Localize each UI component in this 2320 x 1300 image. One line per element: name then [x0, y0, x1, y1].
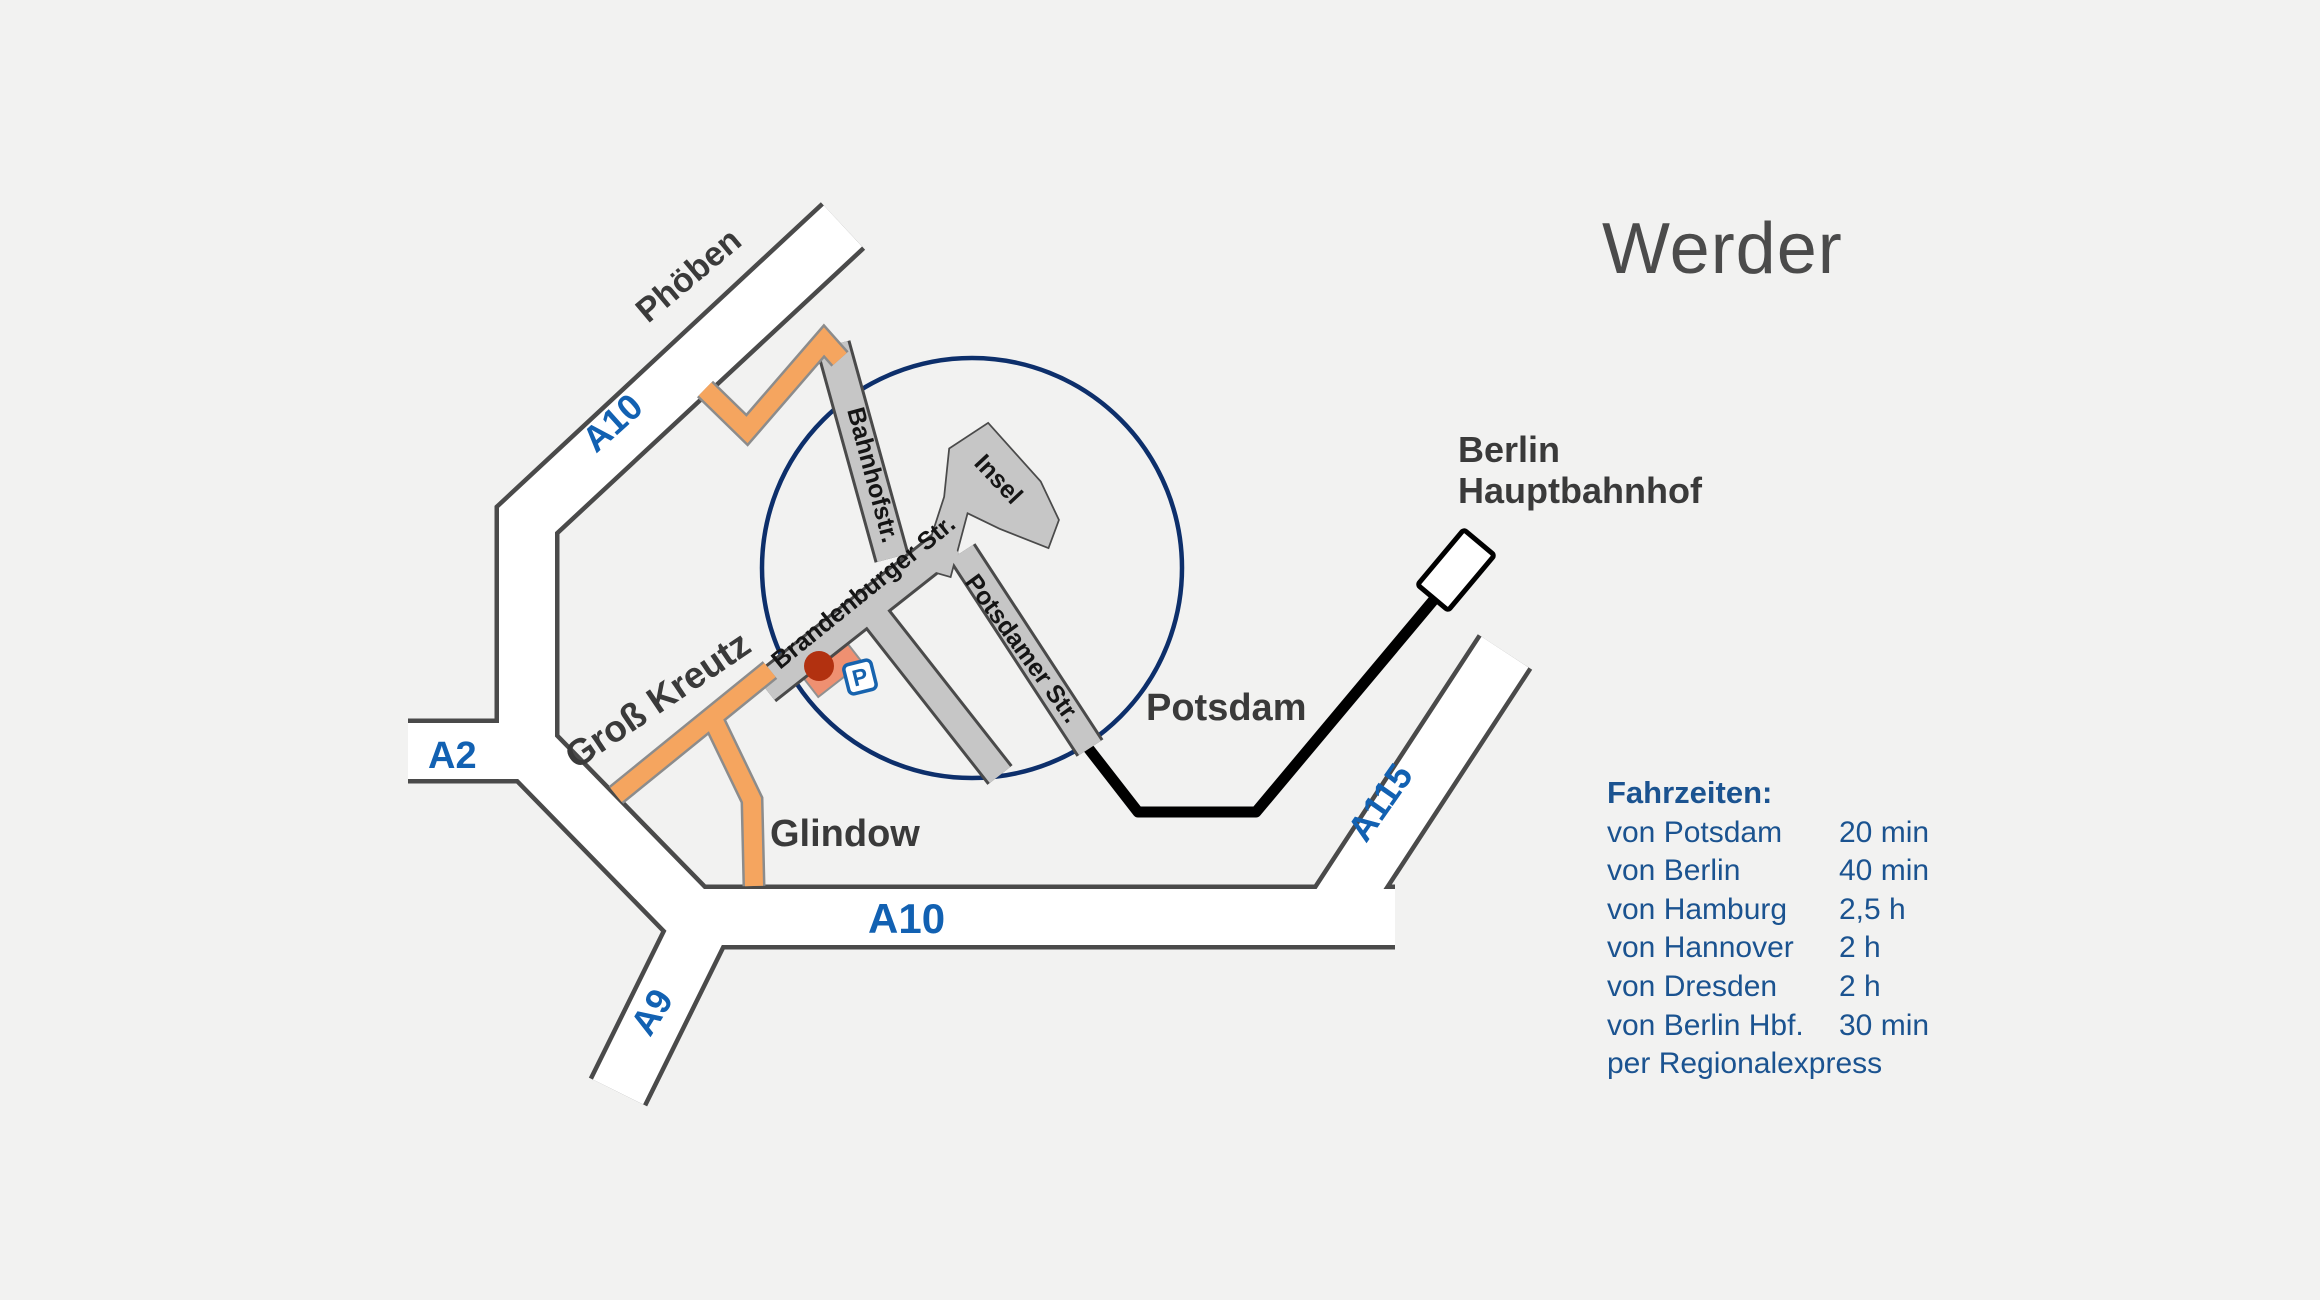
highway-casing — [408, 226, 1505, 1092]
label-potsdamer-str: Potsdamer Str. — [959, 569, 1085, 728]
label-berlin-hbf-line2: Hauptbahnhof — [1458, 470, 1703, 511]
street-network — [765, 345, 1090, 775]
travel-time-row: von Berlin Hbf. 30 min — [1607, 1007, 2027, 1046]
travel-time-label: von Hannover — [1607, 929, 1839, 968]
label-potsdam: Potsdam — [1146, 687, 1306, 729]
label-brandenburger-str: Brandenburger Str. — [766, 510, 961, 675]
travel-times-panel: Fahrzeiten: von Potsdam 20 min von Berli… — [1607, 774, 2027, 1084]
label-a10-south: A10 — [868, 895, 945, 942]
travel-time-value: 2 h — [1839, 968, 2027, 1007]
travel-time-label: von Berlin — [1607, 852, 1839, 891]
highway-fill — [408, 226, 1505, 1092]
travel-times-note: per Regionalexpress — [1607, 1045, 2027, 1084]
travel-time-row: von Dresden 2 h — [1607, 968, 2027, 1007]
travel-time-row: von Hamburg 2,5 h — [1607, 891, 2027, 930]
schematic-map: P Phöben A10 A2 Groß Kreutz Glindow A10 … — [0, 0, 2320, 1300]
travel-time-row: von Hannover 2 h — [1607, 929, 2027, 968]
page-title: Werder — [1602, 210, 1843, 289]
label-berlin-hbf-line1: Berlin — [1458, 429, 1560, 470]
travel-time-value: 40 min — [1839, 852, 2027, 891]
travel-time-value: 2 h — [1839, 929, 2027, 968]
travel-time-label: von Potsdam — [1607, 814, 1839, 853]
travel-times-heading: Fahrzeiten: — [1607, 774, 2027, 813]
label-glindow: Glindow — [770, 813, 920, 855]
travel-time-row: von Potsdam 20 min — [1607, 814, 2027, 853]
travel-time-label: von Dresden — [1607, 968, 1839, 1007]
travel-time-label: von Berlin Hbf. — [1607, 1007, 1839, 1046]
travel-time-value: 30 min — [1839, 1007, 2027, 1046]
travel-time-value: 2,5 h — [1839, 891, 2027, 930]
highway-network — [408, 226, 1505, 1092]
parking-sign: P — [843, 659, 877, 695]
label-a2: A2 — [428, 735, 477, 777]
travel-time-label: von Hamburg — [1607, 891, 1839, 930]
travel-time-value: 20 min — [1839, 814, 2027, 853]
location-marker-dot — [804, 651, 834, 681]
travel-time-row: von Berlin 40 min — [1607, 852, 2027, 891]
